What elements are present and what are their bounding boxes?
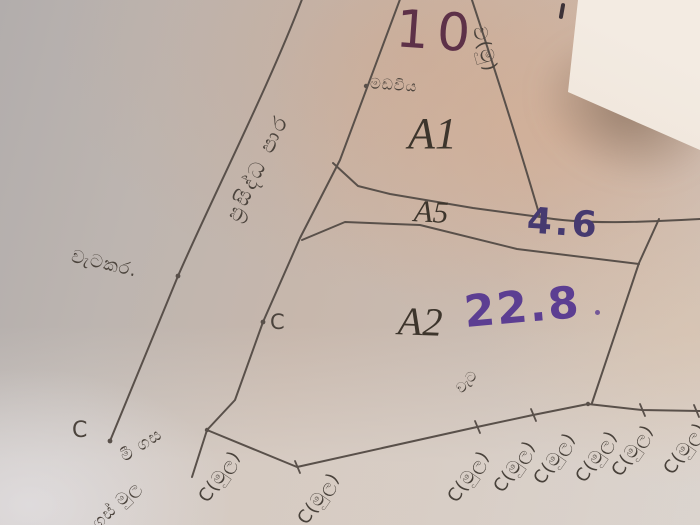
point-c-label-corner: C	[72, 418, 87, 443]
lot-label-a1: A1	[408, 108, 457, 159]
survey-point-dot	[586, 402, 590, 406]
measurement-4-6: 4.6	[526, 201, 601, 247]
survey-point-dot	[364, 84, 368, 88]
lot-number-10: 10	[394, 0, 480, 65]
madaviya-label: මඩවිය	[369, 74, 418, 95]
photo-canvas: 10 4.6 22.8 A1 A5 A2 ප්‍රසිද්ධ පාර වැටකර…	[0, 0, 700, 525]
road-right-edge-line	[192, 0, 402, 477]
survey-point-dot	[176, 274, 181, 279]
survey-point-dot	[261, 320, 266, 325]
east-boundary-line	[592, 219, 659, 403]
lot-label-a5: A5	[413, 193, 449, 231]
survey-point-dot	[205, 428, 209, 432]
road-left-edge-line	[110, 0, 304, 441]
point-c-label-mid: C	[270, 310, 285, 334]
ink-dot	[595, 310, 600, 315]
measurement-22-8: 22.8	[462, 277, 583, 338]
lot-label-a2: A2	[397, 297, 443, 346]
survey-point-dot	[108, 439, 113, 444]
